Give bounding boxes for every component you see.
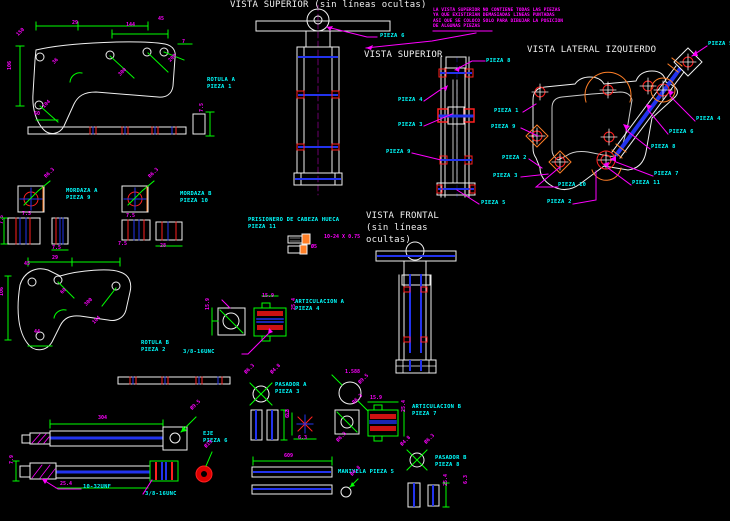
part-label: PIEZA 6: [380, 34, 405, 40]
dim-label: R6.3: [148, 167, 160, 179]
dim-label: 6.3: [464, 475, 469, 484]
part-label: PRISIONERO DE CABEZA HUECA: [248, 218, 339, 224]
dim-label: Ø6.3: [336, 431, 348, 443]
part-label: PIEZA 9: [491, 125, 516, 131]
part-label: 3/8-16UNC: [145, 492, 177, 498]
part-label: PIEZA 2: [547, 200, 572, 206]
view-title: (sin líneas: [366, 224, 428, 233]
view-title: ocultas): [366, 236, 411, 245]
dim-label: R6.3: [44, 167, 56, 179]
dim-label: 15.9: [206, 298, 211, 310]
part-label: PIEZA 2: [502, 156, 527, 162]
part-label: PIEZA 10: [180, 199, 208, 205]
part-label: PIEZA 3: [275, 390, 300, 396]
dim-label: 7.9: [10, 455, 15, 464]
dim-label: 104: [92, 316, 102, 326]
part-label: PIEZA 11: [632, 181, 660, 187]
part-label: PIEZA 3: [493, 174, 518, 180]
dim-label: 6.3: [286, 409, 291, 418]
part-label: ARTICULACION A: [295, 300, 344, 306]
part-label: PASADOR B: [435, 456, 467, 462]
view-title: VISTA FRONTAL: [366, 212, 439, 221]
dim-label: 7.5: [0, 215, 5, 224]
dim-label: 15.9: [370, 396, 382, 401]
dim-label: Ø9.5: [190, 399, 202, 411]
view-title: VISTA SUPERIOR (sin líneas ocultas): [230, 1, 427, 10]
dim-label: 25.4: [444, 474, 449, 486]
part-label: PIEZA 4: [398, 98, 423, 104]
dim-label: 7.5: [200, 103, 205, 112]
dim-label: 1.588: [345, 370, 360, 375]
dim-label: 6.3: [298, 436, 307, 441]
dim-label: 200: [168, 54, 178, 64]
part-label: EJE: [203, 432, 214, 438]
part-label: MORDAZA B: [180, 192, 212, 198]
dim-label: Ø5: [311, 245, 317, 250]
dim-label: 10-24 X 0.75: [324, 235, 360, 240]
part-label: PIEZA 8: [651, 145, 676, 151]
cad-canvas: VISTA SUPERIOR (sin líneas ocultas)VISTA…: [0, 0, 730, 521]
dim-label: 106: [0, 287, 5, 296]
part-label: PIEZA 2: [141, 348, 166, 354]
dim-label: 29: [72, 21, 78, 26]
part-label: PIEZA 5: [481, 201, 506, 207]
note-line: DE ALGUNAS PIEZAS: [433, 25, 480, 30]
dim-label: 300: [118, 68, 128, 78]
dim-label: 7.5: [22, 212, 31, 217]
part-label: PIEZA 1: [207, 85, 232, 91]
dim-label: 29: [52, 256, 58, 261]
dim-label: 45: [158, 17, 164, 22]
dim-label: 25.4: [60, 482, 72, 487]
dim-label: 60: [34, 112, 40, 117]
part-label: PIEZA 4: [295, 307, 320, 313]
part-label: PIEZA 11: [248, 225, 276, 231]
part-label: PIEZA 9: [386, 150, 411, 156]
part-label: PIEZA 7: [654, 172, 679, 178]
part-label: ARTICULACION B: [412, 405, 461, 411]
dim-label: Ø4.8: [270, 363, 282, 375]
dim-label: Ø6.3: [244, 363, 256, 375]
part-label: PIEZA 5: [708, 42, 730, 48]
part-label: ROTULA A: [207, 78, 235, 84]
dim-label: 300: [84, 298, 94, 308]
dim-label: 36: [52, 58, 60, 66]
dim-label: 15.9: [262, 294, 274, 299]
part-label: ROTULA B: [141, 341, 169, 347]
part-label: PASADOR A: [275, 383, 307, 389]
dim-label: Ø4.8: [400, 435, 412, 447]
part-label: PIEZA 3: [398, 123, 423, 129]
dim-label: 144: [126, 23, 135, 28]
dim-label: Ø9.5: [358, 373, 370, 385]
part-label: MORDAZA A: [66, 189, 98, 195]
part-label: PIEZA 7: [412, 412, 437, 418]
part-label: PIEZA 1: [494, 109, 519, 115]
dim-label: 25.4: [292, 298, 297, 310]
dim-label: 150: [16, 28, 26, 38]
part-label: PIEZA 8: [435, 463, 460, 469]
part-label: 10-32UNF: [83, 485, 111, 491]
view-title: VISTA SUPERIOR: [364, 51, 443, 60]
dim-label: 7: [182, 40, 185, 45]
part-label: PIEZA 10: [558, 183, 586, 189]
view-title: VISTA LATERAL IZQUIERDO: [527, 46, 656, 55]
dim-label: 7.5: [118, 242, 127, 247]
part-label: PIEZA 4: [696, 117, 721, 123]
part-label: PIEZA 9: [66, 196, 91, 202]
dim-label: 104: [42, 100, 52, 110]
dim-label: 60: [60, 288, 68, 296]
dim-label: 106: [8, 61, 13, 70]
dim-label: 7.5: [126, 214, 135, 219]
part-label: PIEZA 8: [486, 59, 511, 65]
dim-label: 45: [24, 262, 30, 267]
annotation-layer: VISTA SUPERIOR (sin líneas ocultas)VISTA…: [0, 0, 730, 521]
dim-label: 304: [98, 416, 107, 421]
dim-label: Ø6.3: [424, 433, 436, 445]
part-label: MANIVELA PIEZA 5: [338, 470, 394, 476]
dim-label: 25.4: [402, 400, 407, 412]
part-label: 3/8-16UNC: [183, 350, 215, 356]
dim-label: 44: [34, 330, 40, 335]
dim-label: 609: [284, 454, 293, 459]
dim-label: 7.5: [52, 246, 61, 251]
dim-label: 28: [160, 244, 166, 249]
part-label: PIEZA 6: [669, 130, 694, 136]
dim-label: R6.3: [352, 393, 364, 405]
